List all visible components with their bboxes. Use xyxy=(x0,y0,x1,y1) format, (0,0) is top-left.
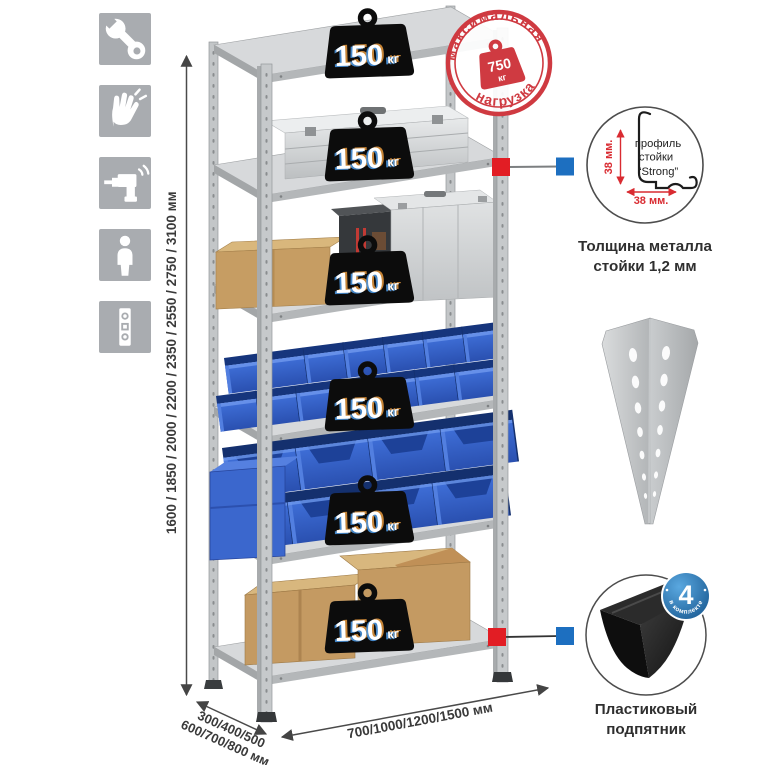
product-infographic: 150кг xyxy=(0,0,765,765)
rack-illustration: 150кг xyxy=(0,0,765,765)
marker-red-top xyxy=(492,158,510,176)
width-dimension-line xyxy=(282,688,548,737)
profile-caption: Толщина металла стойки 1,2 мм xyxy=(535,237,755,277)
svg-text:профиль: профиль xyxy=(635,138,681,150)
callout-connector-bottom xyxy=(488,627,574,646)
svg-text:“Strong”: “Strong” xyxy=(638,166,679,178)
height-dimension-label: 1600 / 1850 / 2000 / 2200 / 2350 / 2550 … xyxy=(164,53,180,673)
profile-callout-circle: 38 мм. 38 мм. профиль стойки “Strong” xyxy=(587,107,703,223)
plastic-foot-front-right xyxy=(492,672,513,682)
callout-connector-top xyxy=(492,158,574,177)
marker-blue-bottom xyxy=(556,627,574,645)
shelving-rack xyxy=(204,6,518,722)
kit-count-badge: 4 в комплекте xyxy=(661,571,711,621)
perforated-post-image xyxy=(602,318,698,524)
foot-caption: Пластиковый подпятник xyxy=(536,700,756,740)
foot-callout-circle: 4 в комплекте xyxy=(586,571,711,695)
marker-blue-top xyxy=(556,158,574,176)
plastic-foot-front-left xyxy=(256,712,277,722)
profile-height-dim: 38 мм. xyxy=(603,140,615,175)
svg-text:4: 4 xyxy=(678,580,693,610)
marker-red-bottom xyxy=(488,628,506,646)
svg-text:стойки: стойки xyxy=(639,152,673,164)
profile-width-dim: 38 мм. xyxy=(634,195,669,207)
